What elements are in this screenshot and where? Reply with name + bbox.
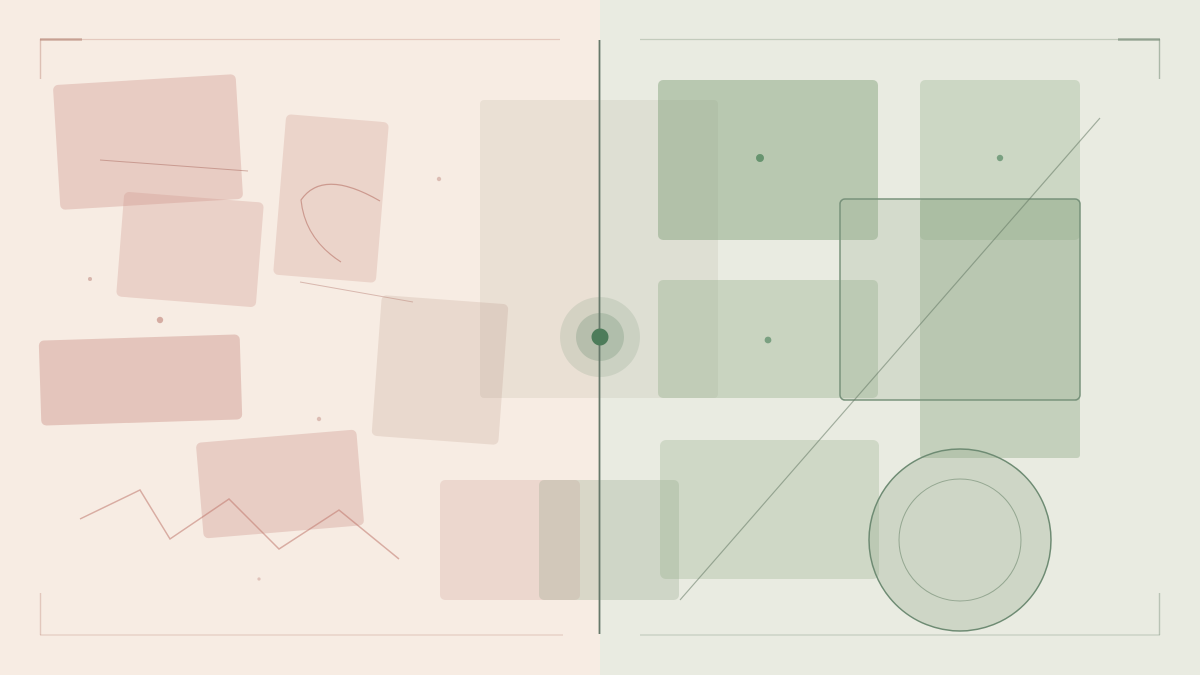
artwork-canvas — [0, 0, 1200, 675]
pink-rect-bottom — [196, 429, 364, 538]
green-dot-1 — [756, 154, 764, 162]
pink-rect-mid-left — [116, 192, 264, 308]
pink-dot-1 — [88, 277, 92, 281]
pink-rect-wide-left — [39, 334, 243, 425]
green-dot-3 — [765, 337, 772, 344]
green-rect-bottom — [660, 440, 879, 579]
pink-dot-5 — [257, 577, 260, 580]
pink-dot-2 — [157, 317, 163, 323]
pink-dot-3 — [437, 177, 441, 181]
pink-dot-4 — [317, 417, 321, 421]
pink-rect-arc-card — [273, 114, 389, 283]
green-dot-2 — [997, 155, 1003, 161]
outlined-green-rect — [840, 199, 1080, 400]
artwork — [0, 0, 1200, 675]
straddle-green-rect — [539, 480, 679, 600]
bullseye-center-dot — [592, 329, 609, 346]
large-circle — [869, 449, 1051, 631]
pink-rect-top-left — [53, 74, 243, 210]
